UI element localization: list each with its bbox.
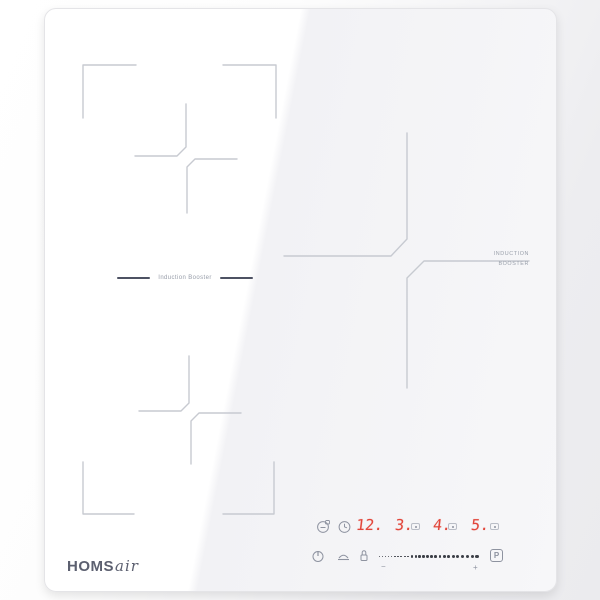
right-zone-booster-line2: BOOSTER <box>453 260 529 270</box>
brand-logo-script: air <box>115 557 139 575</box>
zone2-indicator-icon <box>448 523 457 530</box>
cooking-zone-markings <box>45 9 558 593</box>
timer-display: 12. <box>355 517 384 534</box>
brand-logo: HOMSair <box>67 557 139 576</box>
right-zone-booster-label: INDUCTION BOOSTER <box>453 250 529 269</box>
lock-icon[interactable] <box>359 548 369 563</box>
pan-detect-icon[interactable] <box>316 519 331 534</box>
zone-top-left-marking <box>83 65 276 213</box>
left-zone-booster-label: Induction Booster <box>117 273 253 283</box>
keep-warm-icon[interactable] <box>336 550 351 563</box>
zone-bottom-left-marking <box>83 356 274 514</box>
booster-p-button[interactable]: P <box>490 549 503 562</box>
timer-icon[interactable] <box>337 519 352 534</box>
brand-logo-bold: HOMS <box>67 558 114 575</box>
induction-hob-glass: Induction Booster INDUCTION BOOSTER 12. … <box>44 8 557 592</box>
zone1-indicator-icon <box>411 523 420 530</box>
slider-plus-label[interactable]: + <box>473 564 478 572</box>
right-zone-booster-line1: INDUCTION <box>453 250 529 260</box>
product-photo-background: Induction Booster INDUCTION BOOSTER 12. … <box>0 0 600 600</box>
label-dash-left <box>117 277 150 279</box>
power-slider-track[interactable] <box>379 552 479 561</box>
slider-minus-label[interactable]: − <box>381 563 386 571</box>
left-zone-booster-text: Induction Booster <box>158 275 212 281</box>
zone3-power-display: 5. <box>470 517 490 534</box>
power-icon[interactable] <box>311 549 325 563</box>
zone3-indicator-icon <box>490 523 499 530</box>
label-dash-right <box>220 277 253 279</box>
